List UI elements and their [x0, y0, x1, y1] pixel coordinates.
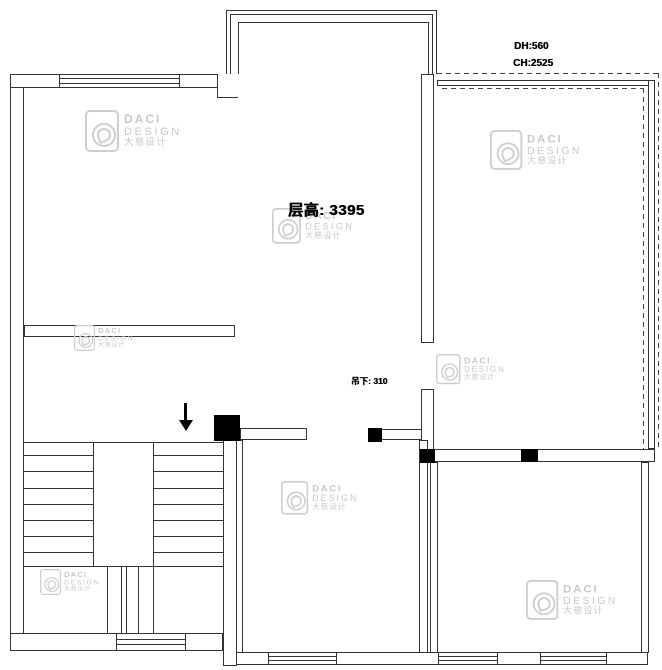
column-room-mid	[521, 449, 538, 462]
watermark: DACI DESIGN 大慈设计	[490, 130, 582, 170]
dh-label: DH:560	[514, 41, 548, 52]
watermark: DACI DESIGN 大慈设计	[40, 569, 100, 595]
dashed-line-right-outer	[658, 73, 659, 449]
watermark: DACI DESIGN 大慈设计	[85, 110, 182, 152]
dashed-line-right-inner	[643, 88, 644, 449]
column-main	[214, 415, 240, 441]
stair-flight-edge	[153, 442, 154, 566]
daci-logo-icon	[40, 569, 61, 595]
watermark-brand: DACI	[124, 113, 182, 126]
window-bottom-center	[268, 652, 337, 665]
wall-top-right	[437, 80, 655, 86]
stair-top-riser	[24, 442, 223, 443]
wall-stub-left	[240, 428, 307, 440]
stair-tread	[126, 566, 127, 633]
daci-logo-icon	[85, 110, 119, 152]
stair-tread	[153, 455, 223, 456]
floor-height-label: 层高: 3395	[288, 199, 365, 220]
bay-window-inner	[238, 22, 429, 74]
stair-tread	[153, 536, 223, 537]
stair-tread	[24, 455, 93, 456]
window-bottom-right-2	[540, 652, 607, 665]
window-bottom-stair	[116, 633, 186, 651]
stair-tread	[121, 566, 122, 633]
daci-logo-icon	[74, 325, 95, 351]
watermark-chinese: 大慈设计	[124, 138, 182, 148]
stair-tread	[24, 552, 93, 553]
beam-drop-label: 吊下: 310	[351, 375, 387, 387]
wall-center-room-right	[419, 440, 428, 653]
watermark: DACI DESIGN 大慈设计	[281, 481, 358, 515]
dashed-line-top-outer	[437, 73, 662, 74]
wall-stair-divider	[223, 440, 237, 666]
floor-plan-canvas: DACI DESIGN 大慈设计 DACI DESIGN 大慈设计 DACI D…	[0, 0, 662, 670]
wall-center-divider-upper	[421, 74, 434, 343]
down-arrow-head-icon	[179, 420, 193, 431]
ch-label: CH:2525	[513, 58, 553, 69]
stair-tread	[153, 552, 223, 553]
watermark: DACI DESIGN 大慈设计	[74, 325, 134, 351]
watermark: DACI DESIGN 大慈设计	[526, 580, 618, 620]
stair-tread	[24, 520, 93, 521]
window-bottom-right-1	[438, 652, 498, 665]
column-door-left	[368, 428, 382, 442]
window-top-left	[59, 74, 180, 88]
wall-stub-right	[381, 429, 422, 440]
daci-logo-icon	[490, 130, 522, 170]
stair-tread	[24, 488, 93, 489]
daci-logo-icon	[436, 354, 460, 384]
stair-tread	[24, 471, 93, 472]
column-room-corner	[420, 449, 435, 463]
stair-tread	[153, 504, 223, 505]
stair-tread	[107, 566, 108, 633]
stair-flight-edge	[93, 442, 94, 566]
wall-left-outer	[10, 74, 24, 650]
stair-tread	[153, 566, 154, 633]
daci-logo-icon	[281, 481, 308, 515]
down-arrow-icon	[184, 403, 187, 420]
stair-tread	[153, 520, 223, 521]
dashed-line-top-inner	[442, 88, 643, 89]
stair-tread	[24, 504, 93, 505]
wall-notch	[217, 87, 238, 98]
stair-landing-edge	[24, 566, 223, 567]
wall-right-lower	[641, 462, 649, 653]
stair-tread	[138, 566, 139, 633]
wall-right-upper	[648, 80, 655, 449]
wall-bottom-right-room-left	[430, 462, 438, 653]
stair-tread	[153, 471, 223, 472]
watermark: DACI DESIGN 大慈设计	[436, 354, 506, 384]
stair-tread	[153, 488, 223, 489]
daci-logo-icon	[526, 580, 558, 620]
stair-tread	[24, 536, 93, 537]
